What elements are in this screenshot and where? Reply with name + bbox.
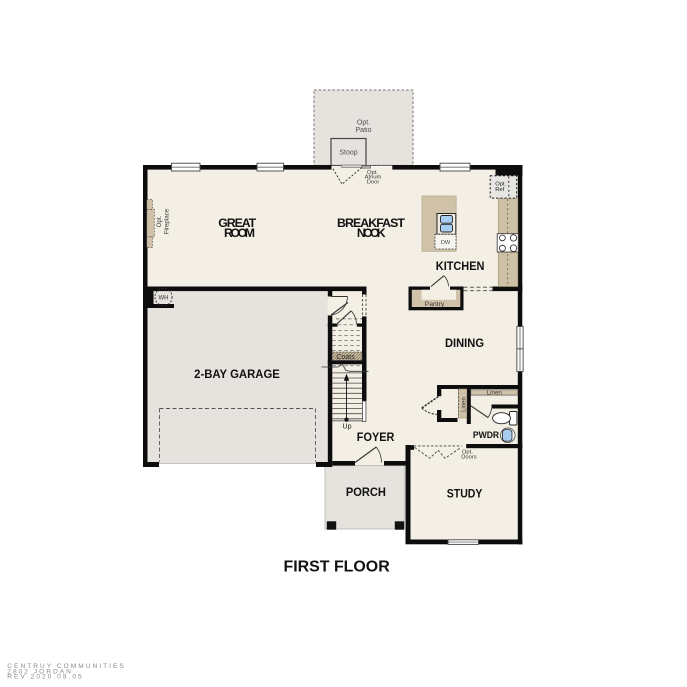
svg-text:Fireplace: Fireplace — [163, 208, 170, 234]
svg-text:Linen: Linen — [461, 397, 467, 412]
svg-text:Coats: Coats — [336, 354, 355, 361]
svg-text:DINING: DINING — [445, 336, 484, 350]
svg-text:Ref: Ref — [495, 187, 504, 193]
svg-text:Patio: Patio — [356, 127, 372, 134]
svg-text:NOOK: NOOK — [357, 226, 386, 240]
svg-text:KITCHEN: KITCHEN — [436, 259, 485, 273]
svg-text:Linen: Linen — [487, 389, 503, 396]
svg-text:WH: WH — [159, 295, 169, 301]
svg-text:REV 2020.08.05: REV 2020.08.05 — [7, 674, 83, 681]
svg-text:Stoop: Stoop — [339, 149, 357, 156]
svg-text:Opt.: Opt. — [357, 119, 370, 126]
svg-text:FIRST FLOOR: FIRST FLOOR — [284, 559, 391, 576]
svg-text:Opt.: Opt. — [156, 215, 163, 227]
svg-text:Door: Door — [367, 179, 380, 185]
svg-text:FOYER: FOYER — [357, 430, 395, 444]
svg-text:Up: Up — [343, 423, 352, 430]
svg-text:STUDY: STUDY — [447, 486, 483, 500]
svg-text:PWDR: PWDR — [473, 430, 500, 440]
svg-text:Pantry: Pantry — [425, 301, 445, 308]
svg-text:DW: DW — [441, 240, 451, 246]
svg-text:ROOM: ROOM — [224, 226, 255, 240]
svg-text:2-BAY GARAGE: 2-BAY GARAGE — [194, 367, 280, 381]
svg-text:Doors: Doors — [461, 454, 477, 460]
svg-text:PORCH: PORCH — [346, 485, 386, 499]
